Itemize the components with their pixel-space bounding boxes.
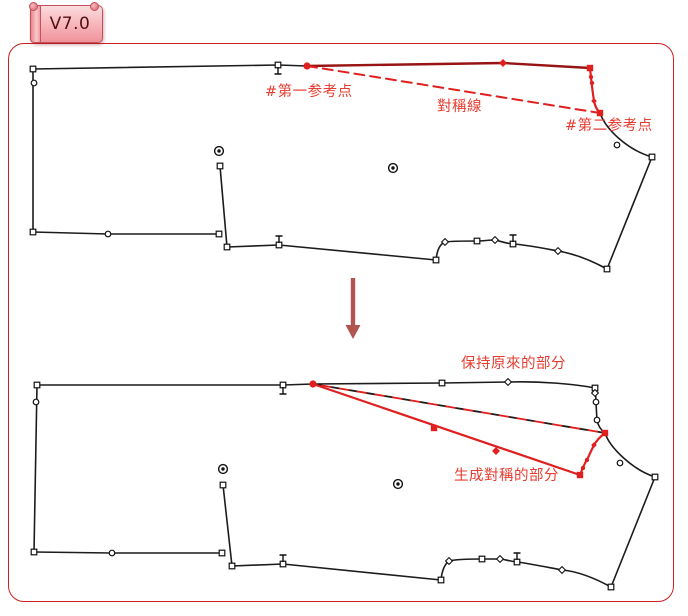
vertex-square-marker [649,154,655,160]
vertex-square-marker [479,556,485,562]
vertex-square-marker [216,231,222,237]
vertex-square-marker [224,244,230,250]
symmetric-curve-dot-marker [581,466,585,470]
curve-diamond-marker [555,248,562,255]
reference-point-marker [309,380,316,387]
arrow-head [346,325,361,339]
pattern-bottom-armhole-curve [605,433,655,477]
vertex-square-marker [433,257,439,263]
curve-circle-marker [109,550,115,556]
pattern-bottom [31,379,658,590]
reference-point-marker [303,62,310,69]
scroll-curl-icon [90,2,99,11]
symmetric-curve-dot-marker [590,81,594,85]
curve-circle-marker [31,80,37,86]
curve-circle-marker [105,231,111,237]
vertex-square-marker [217,163,223,169]
vertex-square-marker [219,550,225,556]
registration-mark-icon [219,465,228,474]
vertex-square-marker [30,229,36,235]
pattern-bottom-lower-edge [232,564,441,580]
registration-mark-icon [389,164,398,173]
reference-point-marker [597,110,603,116]
markers-bottom [31,379,658,590]
vertex-square-marker [34,382,40,388]
generated-symmetric-part-label: 生成對稱的部分 [454,468,559,485]
pattern-top-selected-edge-dark-red [307,63,590,68]
reference-point-marker [577,472,583,478]
vertex-square-marker [220,482,226,488]
vertex-square-marker [280,561,286,567]
vertex-square-marker [280,382,286,388]
symmetric-curve-diamond-marker [591,98,597,104]
pattern-bottom-right-edge [611,477,655,587]
curve-circle-marker [33,399,39,405]
scroll-curl-icon [29,2,38,11]
generated-symmetric-line-red [313,384,580,475]
curve-circle-marker [593,399,599,405]
vertex-square-marker [31,549,37,555]
symmetric-curve-dot-marker [585,458,589,462]
vertex-square-marker [510,241,516,247]
curve-diamond-marker [559,567,566,574]
curve-diamond-marker [492,237,499,244]
pattern-top-bottom-edge [33,232,219,234]
vertex-square-marker [30,66,36,72]
reference-diamond-marker [499,59,507,67]
curve-diamond-marker [505,379,512,386]
registration-mark-icon [215,147,224,156]
vertex-square-marker [276,242,282,248]
vertex-square-marker [608,584,614,590]
first-reference-point-label: #第一参考点 [265,84,353,101]
vertex-square-marker [474,238,480,244]
reference-point-marker [431,425,437,431]
vertex-square-marker [275,62,281,68]
vertex-square-marker [229,563,235,569]
vertex-square-marker [514,559,520,565]
pattern-bottom-bottom-curve [441,559,611,587]
symmetry-line-label: 對稱線 [437,99,482,116]
symmetric-curve-dot-marker [589,75,593,79]
curve-circle-marker [594,417,600,423]
curve-circle-marker [614,142,620,148]
pattern-bottom-kept-top-edge [313,382,595,388]
keep-original-part-label: 保持原來的部分 [461,356,566,373]
pattern-bottom-bottom-edge [34,552,222,553]
vertex-square-marker [439,380,445,386]
registration-mark-icon [394,480,403,489]
version-label: V7.0 [43,16,91,33]
vertex-square-marker [438,577,444,583]
reference-point-marker [587,65,593,71]
second-reference-point-label: #第二参考点 [565,118,653,135]
pattern-top-selected-curve-red [590,68,600,113]
pattern-top-bottom-curve [436,240,607,269]
pattern-top-right-edge [607,157,652,269]
curve-diamond-marker [497,556,504,563]
vertex-square-marker [604,266,610,272]
pattern-bottom-left-and-top-edge [34,384,313,552]
curve-circle-marker [617,460,623,466]
version-badge: V7.0 [30,5,103,43]
reference-point-marker [602,430,608,436]
pattern-top-lower-edge [227,245,436,260]
transform-arrow [346,278,361,339]
vertex-square-marker [652,474,658,480]
